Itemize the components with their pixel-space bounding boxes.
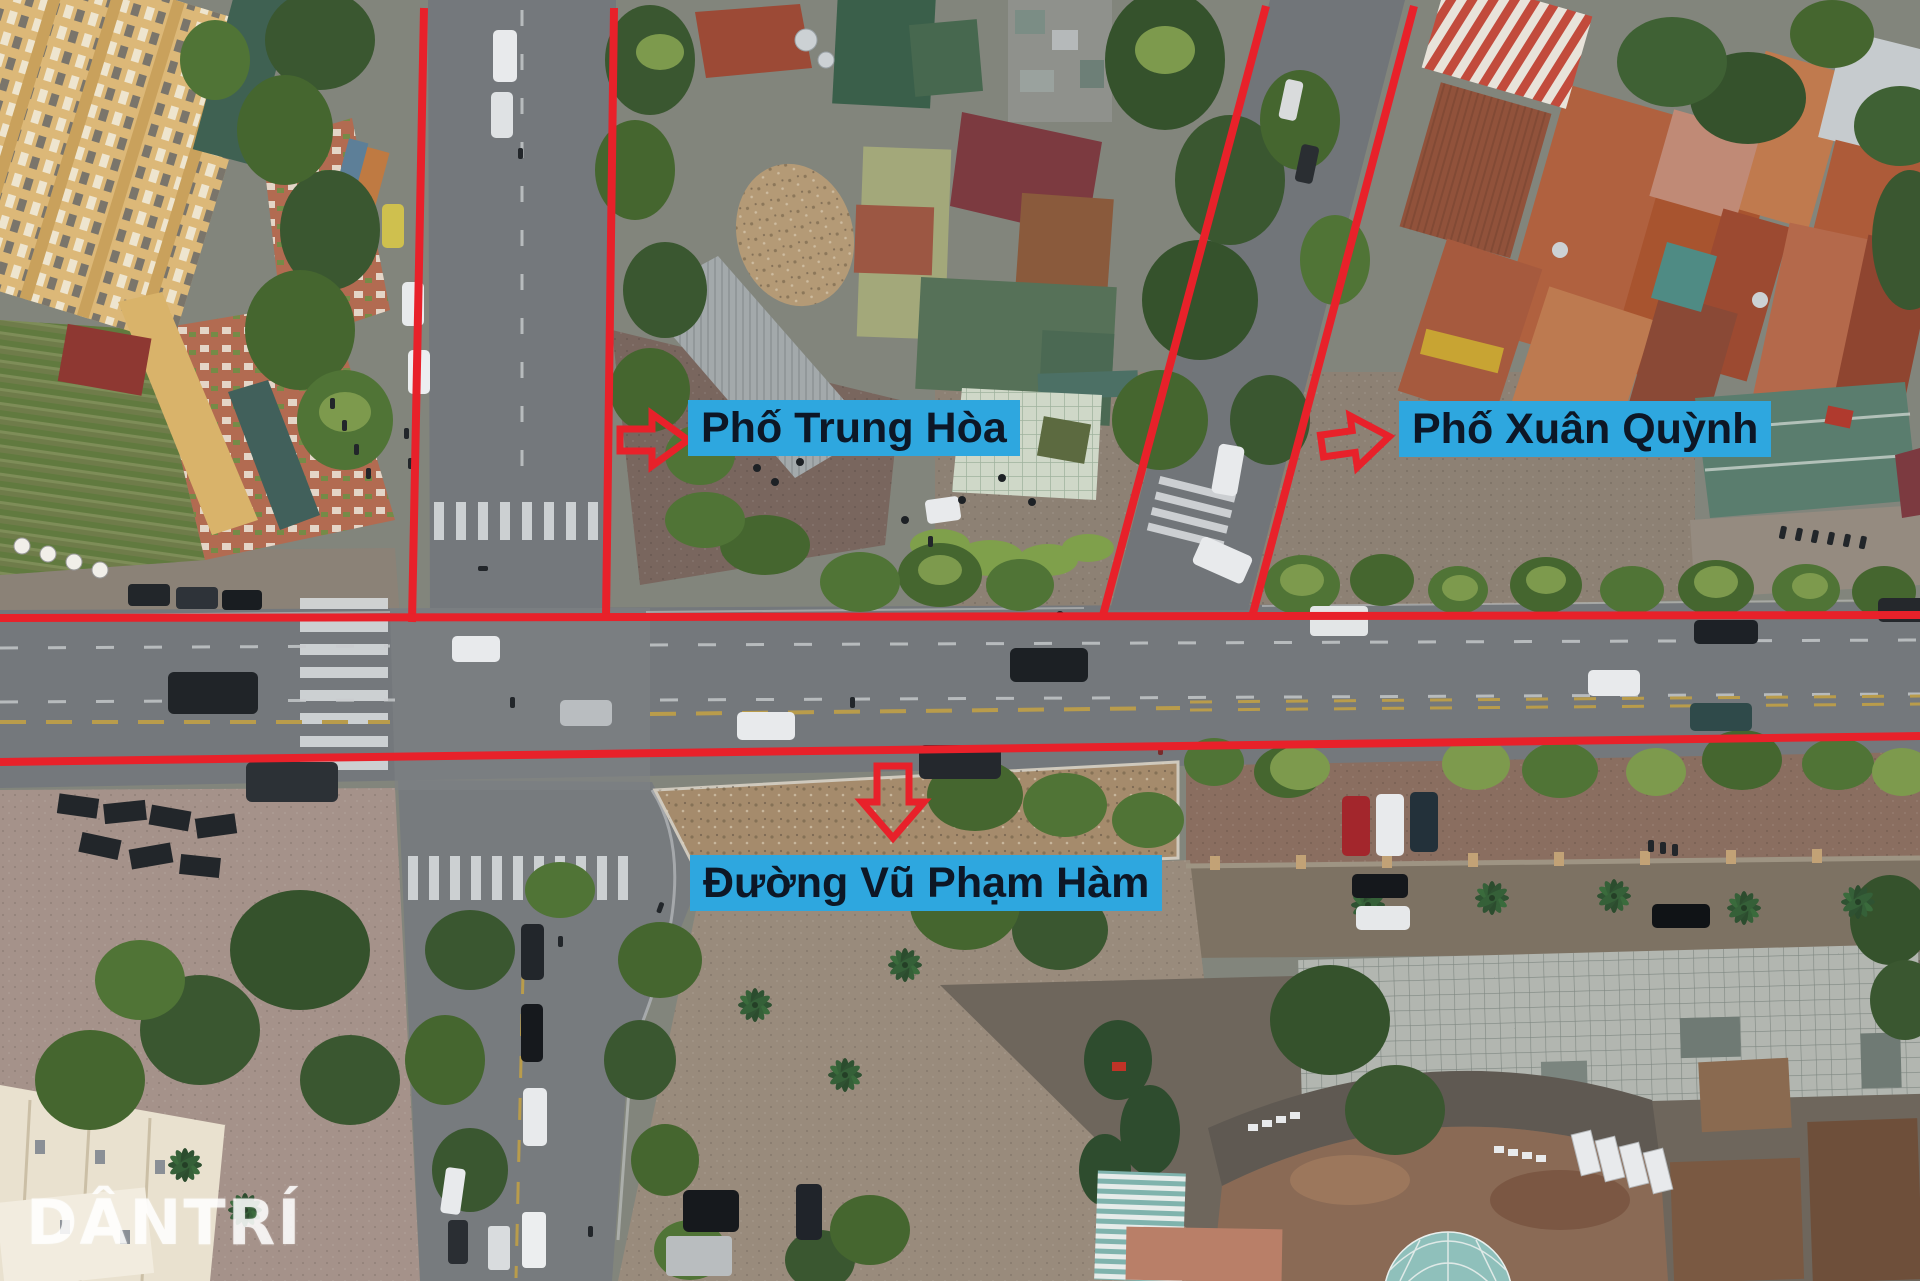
annotated-aerial-photo: Phố Trung Hòa Phố Xuân Quỳnh Đường Vũ Ph… [0,0,1920,1281]
route-line-horizontal-top [0,615,1920,618]
right-arrow-icon [620,414,688,466]
right-arrow-icon [1318,411,1393,472]
down-arrow-icon [862,766,924,838]
annotation-overlay [0,0,1920,1281]
route-line-vertical-right [606,8,614,618]
route-line-diagonal-left [1102,6,1266,619]
route-line-diagonal-right [1252,6,1414,617]
street-label-pho-trung-hoa: Phố Trung Hòa [688,400,1020,456]
street-label-duong-vu-pham-ham: Đường Vũ Phạm Hàm [690,855,1162,911]
route-line-vertical-left [412,8,424,622]
street-label-pho-xuan-quynh: Phố Xuân Quỳnh [1399,401,1771,457]
planned-route-lines [0,6,1920,762]
route-line-horizontal-bottom [0,736,1920,762]
watermark: DÂNTRÍ [26,1186,302,1259]
